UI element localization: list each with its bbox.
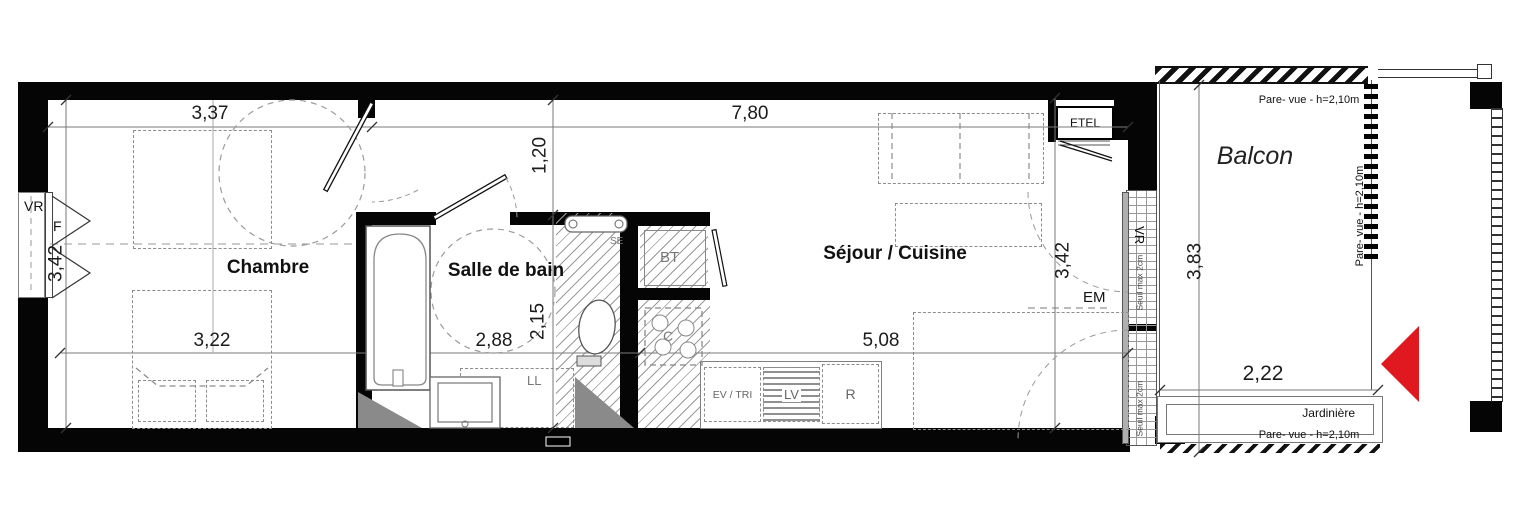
planter-label: Jardinière (1240, 407, 1355, 420)
burner-2 (678, 320, 694, 336)
entry-door-swing (372, 190, 418, 202)
bt-label: BT (660, 250, 679, 267)
em-label: EM (1083, 290, 1106, 307)
floor-plan: EV / TRI LV R ETEL (0, 0, 1533, 532)
towel-dryer-label: SE (610, 236, 623, 247)
dim-right-depth: 3,42 (1054, 215, 1075, 305)
dim-bathroom-depth: 2,15 (529, 276, 550, 366)
cooktop-label: C (663, 329, 673, 344)
vanity-basin (438, 383, 492, 422)
screen-bottom-label: Pare- vue - h=2,10m (1229, 429, 1389, 441)
window-left-label: F (53, 219, 62, 234)
dim-kitchen-width: 5,08 (836, 331, 926, 352)
bathroom-door-swing (506, 178, 517, 218)
washing-machine-label: LL (527, 374, 541, 388)
east-window-swing-lower (1018, 330, 1128, 440)
entry-door-leaf (324, 102, 374, 191)
dim-bedroom-inner-width: 3,22 (167, 331, 257, 352)
bed-headboard (136, 368, 268, 386)
entrance-arrow (1381, 326, 1419, 402)
south-wall-vent (546, 437, 570, 446)
toilet-cistern (577, 356, 601, 366)
threshold-lower-label: Seuil max 2cm (1135, 364, 1144, 454)
dim-bedroom-width: 3,37 (165, 104, 255, 125)
bathtub-tap (393, 370, 403, 386)
room-label-bathroom: Salle de bain (436, 261, 576, 282)
etel-door-leaf (1060, 141, 1112, 161)
screen-top-label: Pare- vue - h=2,10m (1229, 94, 1389, 106)
room-label-bedroom: Chambre (223, 258, 313, 279)
wedge-right (575, 377, 634, 428)
room-label-living: Séjour / Cuisine (800, 244, 990, 265)
threshold-upper-label: Seuil max 2cm (1135, 238, 1144, 328)
bathroom-door-leaf (433, 175, 507, 220)
wedge-left (358, 392, 422, 428)
shutter-left-label: VR (24, 199, 43, 214)
dim-balcony-depth: 3,83 (1186, 216, 1207, 306)
dim-balcony-width: 2,22 (1218, 362, 1308, 385)
east-window-swing-upper (1028, 192, 1128, 292)
dim-living-width: 7,80 (705, 104, 795, 125)
dim-entry-depth: 1,20 (531, 110, 552, 200)
burner-4 (680, 342, 696, 358)
towel-radiator (565, 216, 627, 232)
bt-door-leaf (712, 230, 727, 287)
table-divisions (892, 113, 1029, 182)
toilet-bowl (575, 298, 618, 356)
room-label-balcony: Balcon (1185, 143, 1325, 171)
dim-bathroom-width: 2,88 (449, 331, 539, 352)
screen-right-label: Pare- vue - h=2,10m (1354, 136, 1366, 296)
